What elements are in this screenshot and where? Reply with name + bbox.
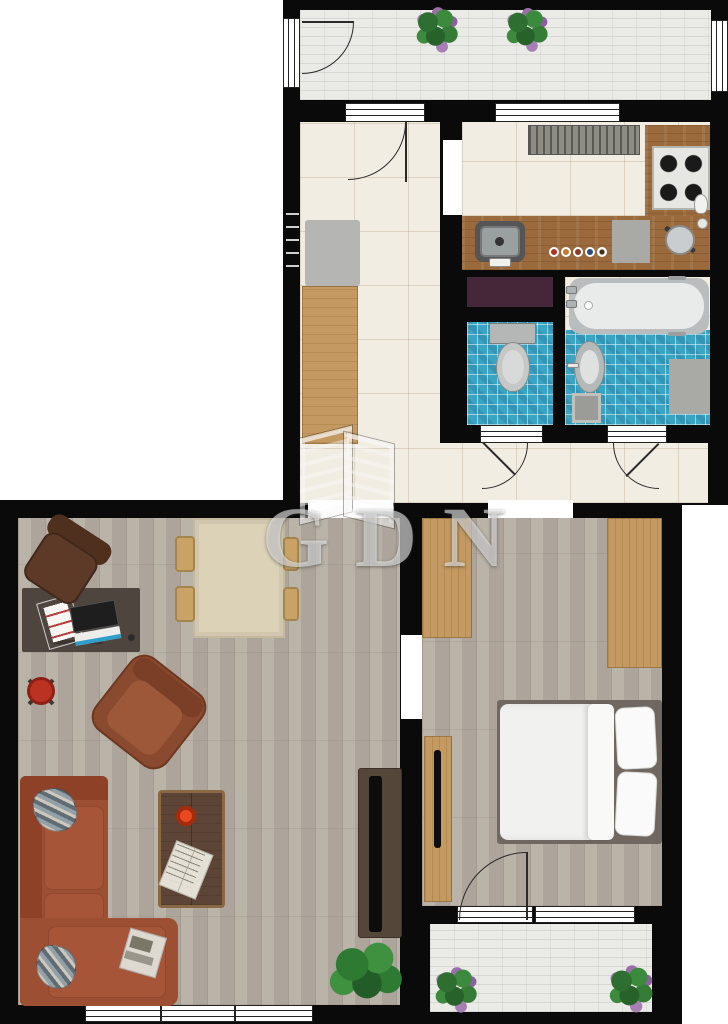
hall-wardrobe	[302, 286, 358, 444]
floor-plan: GDN	[0, 0, 728, 1024]
balcony-plant-2	[503, 5, 553, 55]
flower-red	[174, 804, 198, 828]
hall-cabinet	[305, 220, 360, 286]
bedroom-window	[535, 906, 635, 923]
kitchen-radiator	[528, 125, 640, 155]
bedroom-wardrobe-right	[607, 518, 662, 668]
dining-chair-4	[283, 587, 299, 621]
living-room-plant	[330, 942, 404, 1006]
desk-knob-right	[128, 634, 135, 641]
living-room-window	[85, 1005, 313, 1022]
side-stool-red	[27, 677, 55, 705]
hall-kitchen-opening	[443, 140, 462, 215]
kitchen-faucet	[489, 258, 511, 267]
bed-pillow-1	[614, 706, 657, 770]
spice-jar-3	[573, 247, 583, 257]
spice-jar-2	[561, 247, 571, 257]
bottom-balcony-plant-2	[606, 962, 658, 1016]
wc-shelf-purple	[467, 277, 553, 307]
dining-chair-2	[175, 586, 195, 622]
bathroom-door-sill	[607, 425, 667, 443]
hall-radiator	[286, 203, 299, 267]
bed-duvet-fold	[588, 704, 614, 840]
bathtub-handle-bottom	[668, 332, 686, 336]
toilet-seat	[502, 350, 524, 384]
spice-jar-5	[597, 247, 607, 257]
balcony-hall-door-sill	[345, 103, 425, 122]
bathtub-handle-top	[668, 276, 686, 280]
spice-jar-1	[549, 247, 559, 257]
tv-living	[369, 776, 382, 932]
wc-door-sill	[480, 425, 543, 443]
toilet-cistern	[489, 323, 536, 344]
dining-chair-1	[175, 536, 195, 572]
bed-pillow-2	[614, 771, 657, 837]
bathtub-tap-2	[566, 300, 577, 308]
kitchen-sink-drain	[495, 237, 504, 246]
bathtub-tap-1	[566, 286, 577, 294]
watermark-text: GDN	[262, 487, 531, 587]
bottom-balcony-plant-1	[432, 964, 482, 1016]
bath-mat-large	[669, 359, 710, 414]
pan	[665, 225, 695, 255]
bathtub-basin	[574, 283, 704, 329]
tv-bedroom	[434, 750, 441, 848]
living-bedroom-opening	[401, 635, 422, 719]
bath-mat-small	[572, 393, 601, 423]
kitchen-utensil-2	[697, 218, 708, 229]
balcony-plant-1	[413, 4, 463, 56]
bath-sink-tap	[567, 363, 579, 368]
kitchen-window	[495, 103, 620, 122]
balcony-left-window	[283, 18, 300, 88]
balcony-right-window	[711, 20, 728, 92]
kitchen-utensil-1	[694, 194, 708, 214]
cutting-board	[612, 220, 650, 263]
spice-jar-4	[585, 247, 595, 257]
bath-sink-basin	[580, 350, 599, 384]
bathtub-drain	[584, 301, 593, 310]
